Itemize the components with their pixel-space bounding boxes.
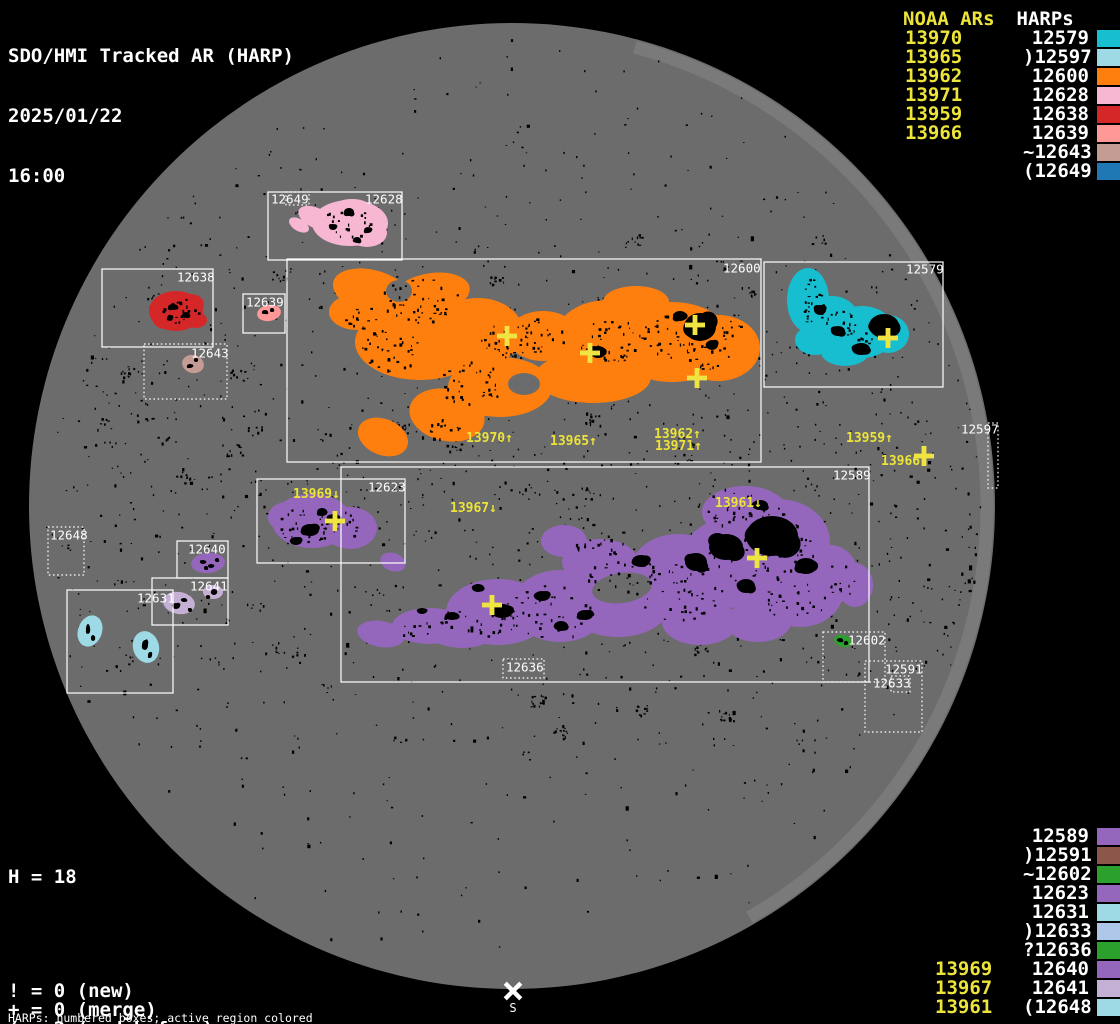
harp-color-swatch [1097,866,1120,883]
harp-color-swatch [1097,942,1120,959]
time-line: 16:00 [8,166,294,186]
harp-box-label-12628: 12628 [365,192,403,207]
plot-title: SDO/HMI Tracked AR (HARP) 2025/01/22 16:… [8,6,294,226]
harp-color-swatch [1097,106,1120,123]
blob-gap [522,284,552,310]
harp-color-swatch [1097,828,1120,845]
harp-color-swatch [1097,980,1120,997]
harp-box-label-12636: 12636 [506,660,544,675]
harp-color-swatch [1097,30,1120,47]
harp-color-swatch [1097,923,1120,940]
harp-color-swatch [1097,885,1120,902]
harp-box-label-12639: 12639 [246,295,284,310]
harp-number: (12648 [1023,998,1089,1017]
harp-color-swatch [1097,847,1120,864]
harp-box-label-12623: 12623 [368,480,406,495]
harp-color-swatch [1097,961,1120,978]
harp-box-label-12631: 12631 [137,591,175,606]
blob-gap [508,373,540,395]
harp-box-label-12591: 12591 [885,662,923,677]
harp-count: H = 18 [8,868,225,887]
legend-noaa-harps: NOAA ARs HARPs 139701257913965)125971396… [902,10,1120,181]
noaa-ar-number: 13966 [902,124,1023,143]
blob-gap [338,381,366,403]
noaa-ar-label-13967: 13967↓ [450,501,497,516]
noaa-ar-label-13969: 13969↓ [293,487,340,502]
harp-box-label-12648: 12648 [50,528,88,543]
noaa-ar-label-13966: 13966↑ [881,454,928,469]
harp-color-swatch [1097,87,1120,104]
harp-box-label-12643: 12643 [191,346,229,361]
harp-box-label-12633: 12633 [873,676,911,691]
harp-box-label-12589: 12589 [833,468,871,483]
harp-box-label-12600: 12600 [723,261,761,276]
harp-box-label-12638: 12638 [177,270,215,285]
harp-color-swatch [1097,999,1120,1016]
south-pole-label: S [509,1001,516,1015]
harp-color-swatch [1097,49,1120,66]
harp-tracker-plot: 1262812649126381263912643126001257912597… [0,0,1120,1024]
legend-top-rows: 139701257913965)125971396212600139711262… [902,29,1120,181]
legend-bottom-rows: 12589)12591~126021262312631)12633?126361… [902,827,1120,1017]
title-line: SDO/HMI Tracked AR (HARP) [8,46,294,66]
footer-line-harps: HARPs: numbered boxes; active region col… [8,1013,410,1024]
harp-box-label-12597: 12597 [961,422,999,437]
noaa-ar-label-13971: 13971↑ [655,439,702,454]
harp-color-swatch [1097,163,1120,180]
ar-region-blob-12638 [149,291,207,331]
harp-box-label-12641: 12641 [190,579,228,594]
footer-notes: HARPs: numbered boxes; active region col… [8,991,410,1024]
harp-color-swatch [1097,904,1120,921]
harp-box-label-12579: 12579 [906,262,944,277]
date-line: 2025/01/22 [8,106,294,126]
noaa-ar-label-13961: 13961↓ [715,496,762,511]
harp-color-swatch [1097,68,1120,85]
noaa-ar-label-13965: 13965↑ [550,434,597,449]
stats-spacer [8,925,225,944]
harp-number: (12649 [1023,162,1089,181]
noaa-ar-label-13959: 13959↑ [846,431,893,446]
legend-row-12648: 13961(12648 [902,998,1120,1017]
harp-color-swatch [1097,125,1120,142]
legend-row-12649: (12649 [902,162,1120,181]
harp-box-label-12640: 12640 [188,542,226,557]
noaa-ar-label-13970: 13970↑ [466,431,513,446]
legend-harps-bottom: 12589)12591~126021262312631)12633?126361… [902,827,1120,1017]
harp-box-label-12602: 12602 [848,633,886,648]
harp-color-swatch [1097,144,1120,161]
noaa-ar-number: 13961 [902,998,1023,1017]
